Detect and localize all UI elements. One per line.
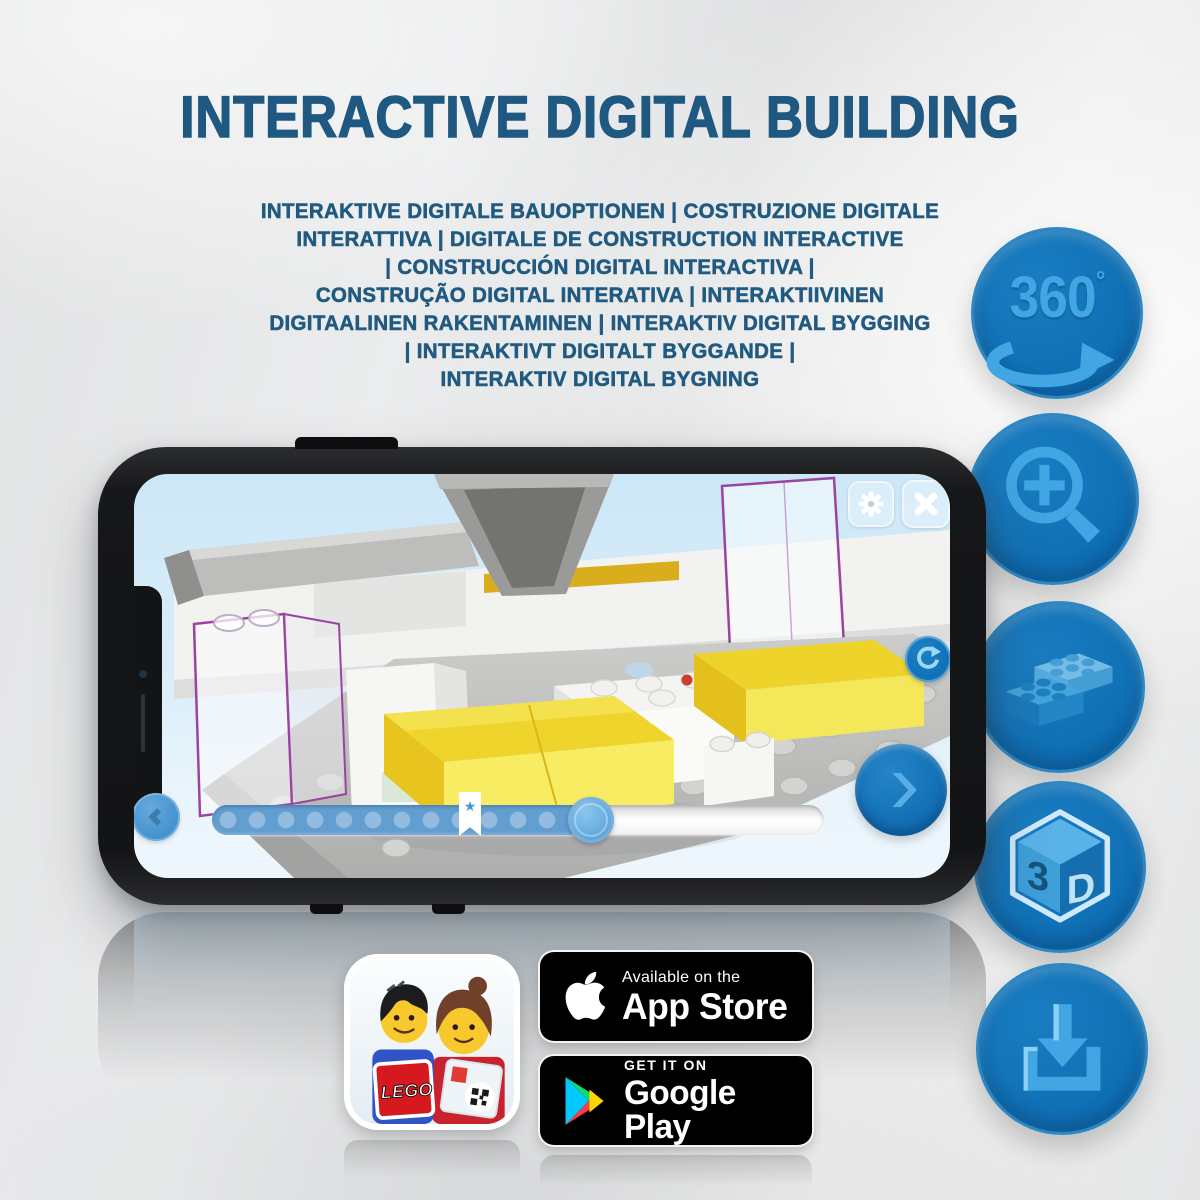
phone-side-button bbox=[310, 904, 343, 914]
360-rotation-arrow-icon: 360° bbox=[981, 264, 1134, 331]
feature-circle-360: 360° bbox=[971, 227, 1143, 399]
build-progress-slider[interactable]: ★ bbox=[212, 805, 824, 835]
page-background: INTERACTIVE DIGITAL BUILDING INTERAKTIVE… bbox=[0, 0, 1200, 1200]
settings-button[interactable] bbox=[848, 481, 894, 527]
back-button[interactable] bbox=[134, 793, 180, 841]
app-store-name: App Store bbox=[622, 989, 787, 1025]
phone-notch bbox=[134, 586, 162, 818]
next-step-button[interactable] bbox=[855, 744, 947, 836]
page-title: INTERACTIVE DIGITAL BUILDING bbox=[72, 84, 1128, 151]
lego-bricks-icon bbox=[992, 620, 1126, 754]
feature-circle-3d: 3 D bbox=[974, 781, 1146, 953]
earpiece-speaker bbox=[141, 694, 145, 752]
phone: ★ bbox=[98, 447, 986, 905]
feature-circle-zoom bbox=[967, 413, 1139, 585]
subtitle-line: INTERAKTIV DIGITAL BYGNING bbox=[173, 365, 1028, 393]
lego-logo-text: LEGO bbox=[380, 1079, 433, 1103]
google-play-badge[interactable]: GET IT ON Google Play bbox=[540, 1056, 812, 1145]
gear-icon bbox=[855, 488, 887, 520]
app-store-badge[interactable]: Available on the App Store bbox=[540, 952, 812, 1041]
close-icon bbox=[909, 487, 943, 521]
subtitle-line: | CONSTRUCCIÓN DIGITAL INTERACTIVA | bbox=[173, 253, 1028, 281]
zoom-in-magnifier-icon bbox=[989, 435, 1117, 563]
star-icon: ★ bbox=[464, 799, 477, 813]
close-button[interactable] bbox=[902, 480, 950, 528]
phone-screen: ★ bbox=[134, 474, 950, 878]
lego-minifigures-art: LEGO bbox=[350, 960, 514, 1124]
3d-cube-icon: 3 D bbox=[994, 801, 1126, 933]
google-play-name: Google Play bbox=[624, 1076, 808, 1144]
download-tray-icon bbox=[998, 985, 1126, 1113]
circular-arrow-icon bbox=[913, 644, 943, 674]
lego-app-icon[interactable]: LEGO bbox=[344, 954, 520, 1130]
chevron-right-icon bbox=[873, 762, 929, 818]
phone-side-button bbox=[432, 904, 465, 914]
feature-circle-bricks bbox=[973, 601, 1145, 773]
subtitle-line: CONSTRUÇÃO DIGITAL INTERATIVA | INTERAKT… bbox=[173, 281, 1028, 309]
app-icon-reflection bbox=[344, 1140, 520, 1186]
google-play-tagline: GET IT ON bbox=[624, 1057, 812, 1073]
slider-step-dots bbox=[218, 805, 608, 835]
subtitle-multilingual: INTERAKTIVE DIGITALE BAUOPTIONEN | COSTR… bbox=[173, 197, 1028, 393]
rotate-model-button[interactable] bbox=[905, 636, 950, 682]
chevron-left-icon bbox=[141, 802, 171, 832]
cube-letter-d: D bbox=[1067, 864, 1096, 914]
subtitle-line: INTERAKTIVE DIGITALE BAUOPTIONEN | COSTR… bbox=[173, 197, 1028, 225]
subtitle-line: INTERATTIVA | DIGITALE DE CONSTRUCTION I… bbox=[173, 225, 1028, 253]
apple-logo-icon bbox=[562, 970, 606, 1024]
subtitle-line: | INTERAKTIVT DIGITALT BYGGANDE | bbox=[173, 337, 1028, 365]
app-store-tagline: Available on the bbox=[622, 969, 794, 987]
front-camera bbox=[139, 670, 147, 678]
slider-fill bbox=[212, 805, 608, 835]
feature-circle-download bbox=[976, 963, 1148, 1135]
badge-reflection bbox=[540, 1155, 812, 1195]
cube-letter-3: 3 bbox=[1027, 853, 1049, 901]
subtitle-line: DIGITAALINEN RAKENTAMINEN | INTERAKTIV D… bbox=[173, 309, 1028, 337]
phone-side-button bbox=[295, 437, 398, 449]
google-play-logo-icon bbox=[562, 1075, 608, 1127]
slider-thumb[interactable] bbox=[568, 797, 614, 843]
